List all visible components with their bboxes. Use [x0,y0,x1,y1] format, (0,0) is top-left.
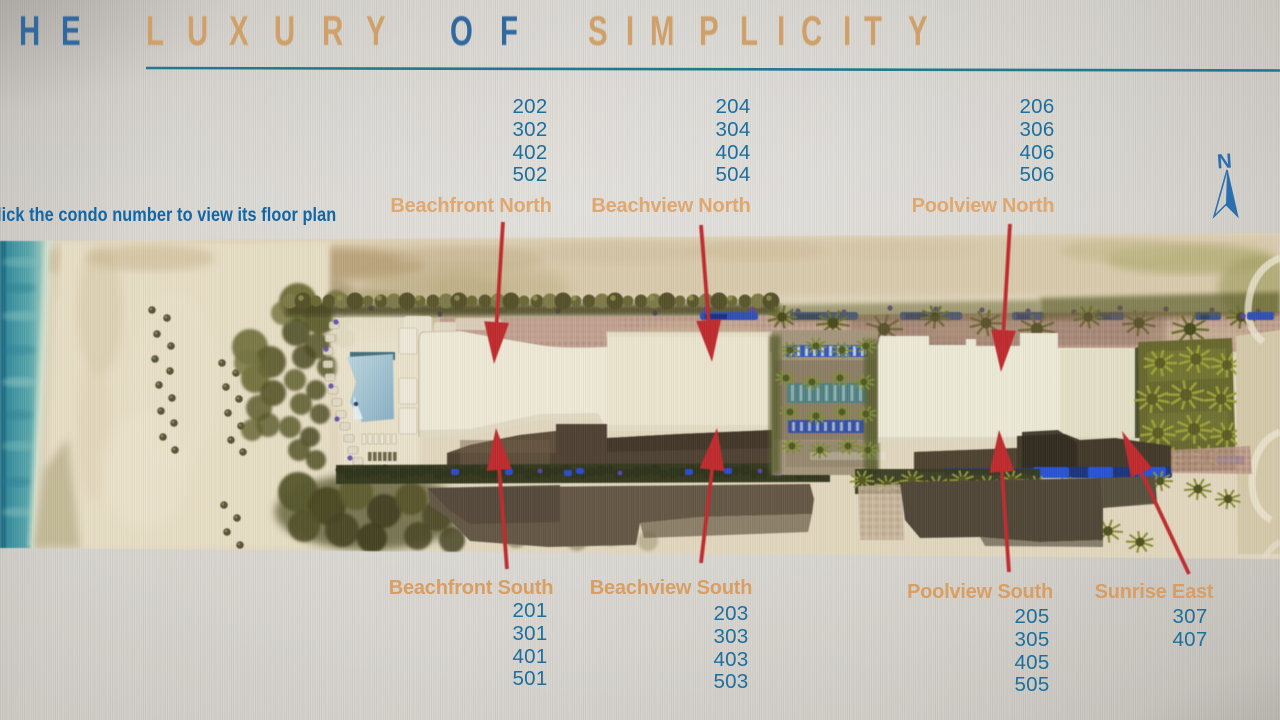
svg-text:N: N [1216,150,1232,174]
